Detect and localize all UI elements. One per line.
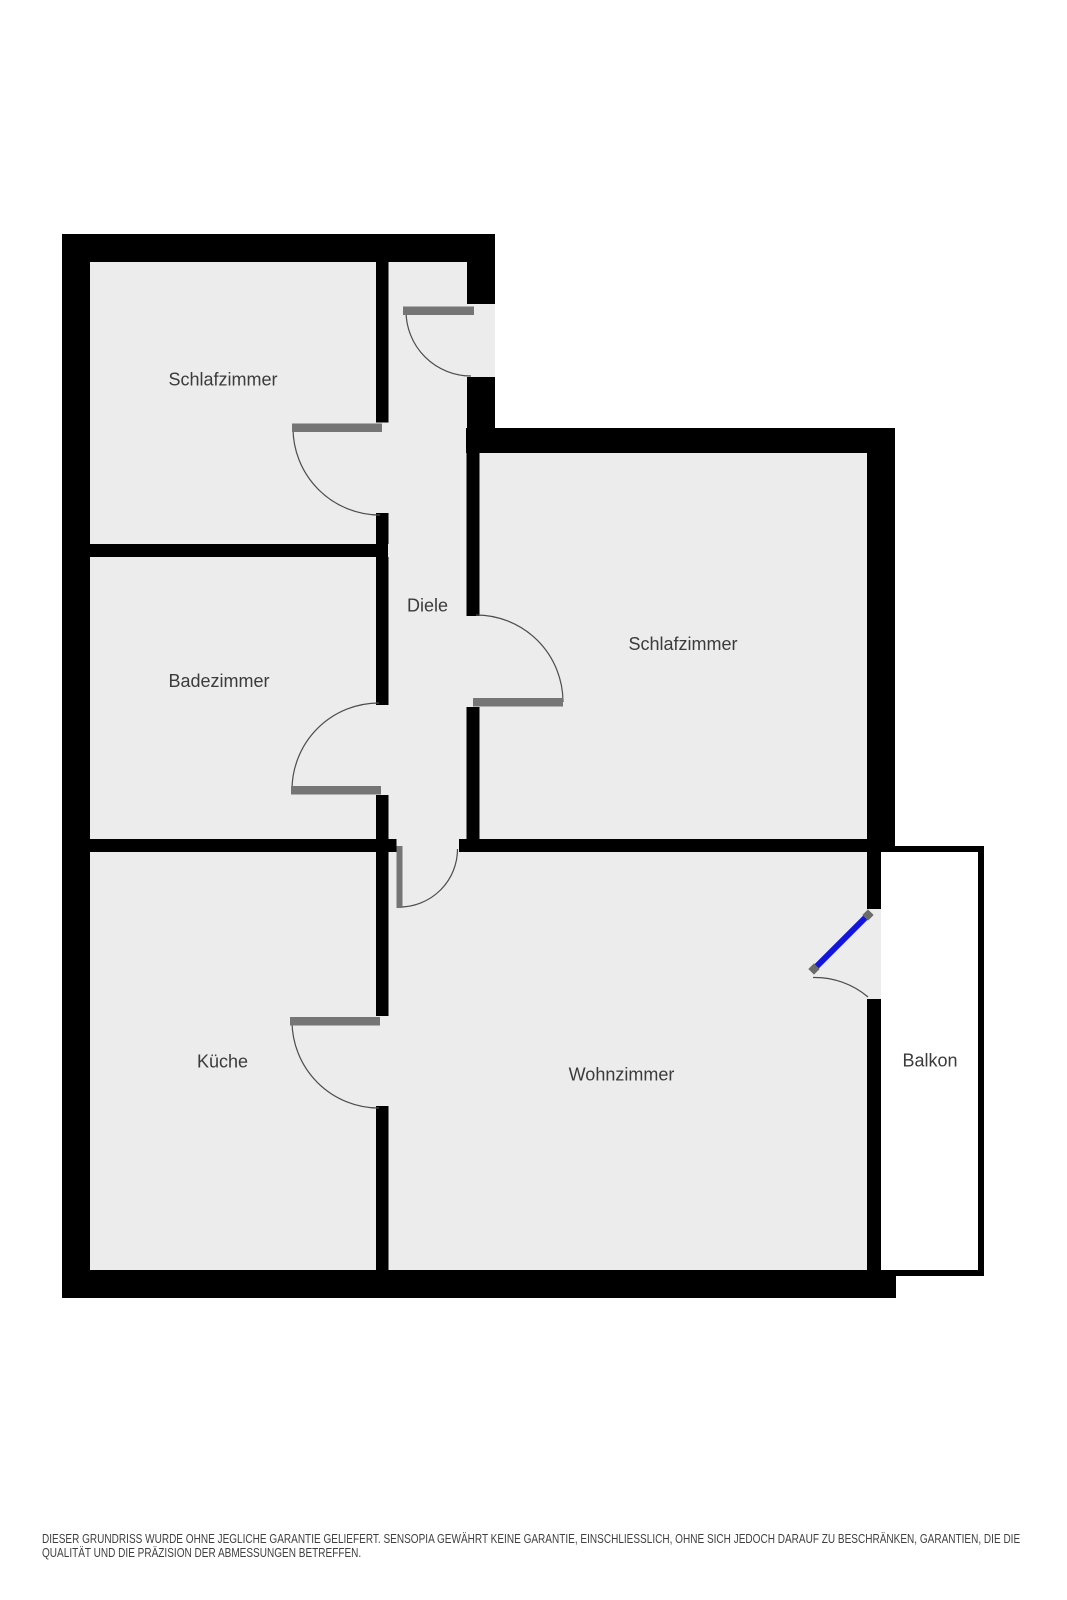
- svg-text:Badezimmer: Badezimmer: [168, 671, 269, 691]
- svg-text:Balkon: Balkon: [902, 1051, 957, 1071]
- svg-text:Wohnzimmer: Wohnzimmer: [569, 1065, 675, 1085]
- svg-text:DIESER GRUNDRISS WURDE OHNE JE: DIESER GRUNDRISS WURDE OHNE JEGLICHE GAR…: [42, 1533, 1021, 1546]
- svg-text:Schlafzimmer: Schlafzimmer: [168, 370, 277, 390]
- svg-text:Diele: Diele: [407, 596, 448, 616]
- svg-text:QUALITÄT UND DIE PRÄZISION DER: QUALITÄT UND DIE PRÄZISION DER ABMESSUNG…: [42, 1547, 361, 1560]
- svg-text:Schlafzimmer: Schlafzimmer: [628, 634, 737, 654]
- svg-text:Küche: Küche: [197, 1052, 248, 1072]
